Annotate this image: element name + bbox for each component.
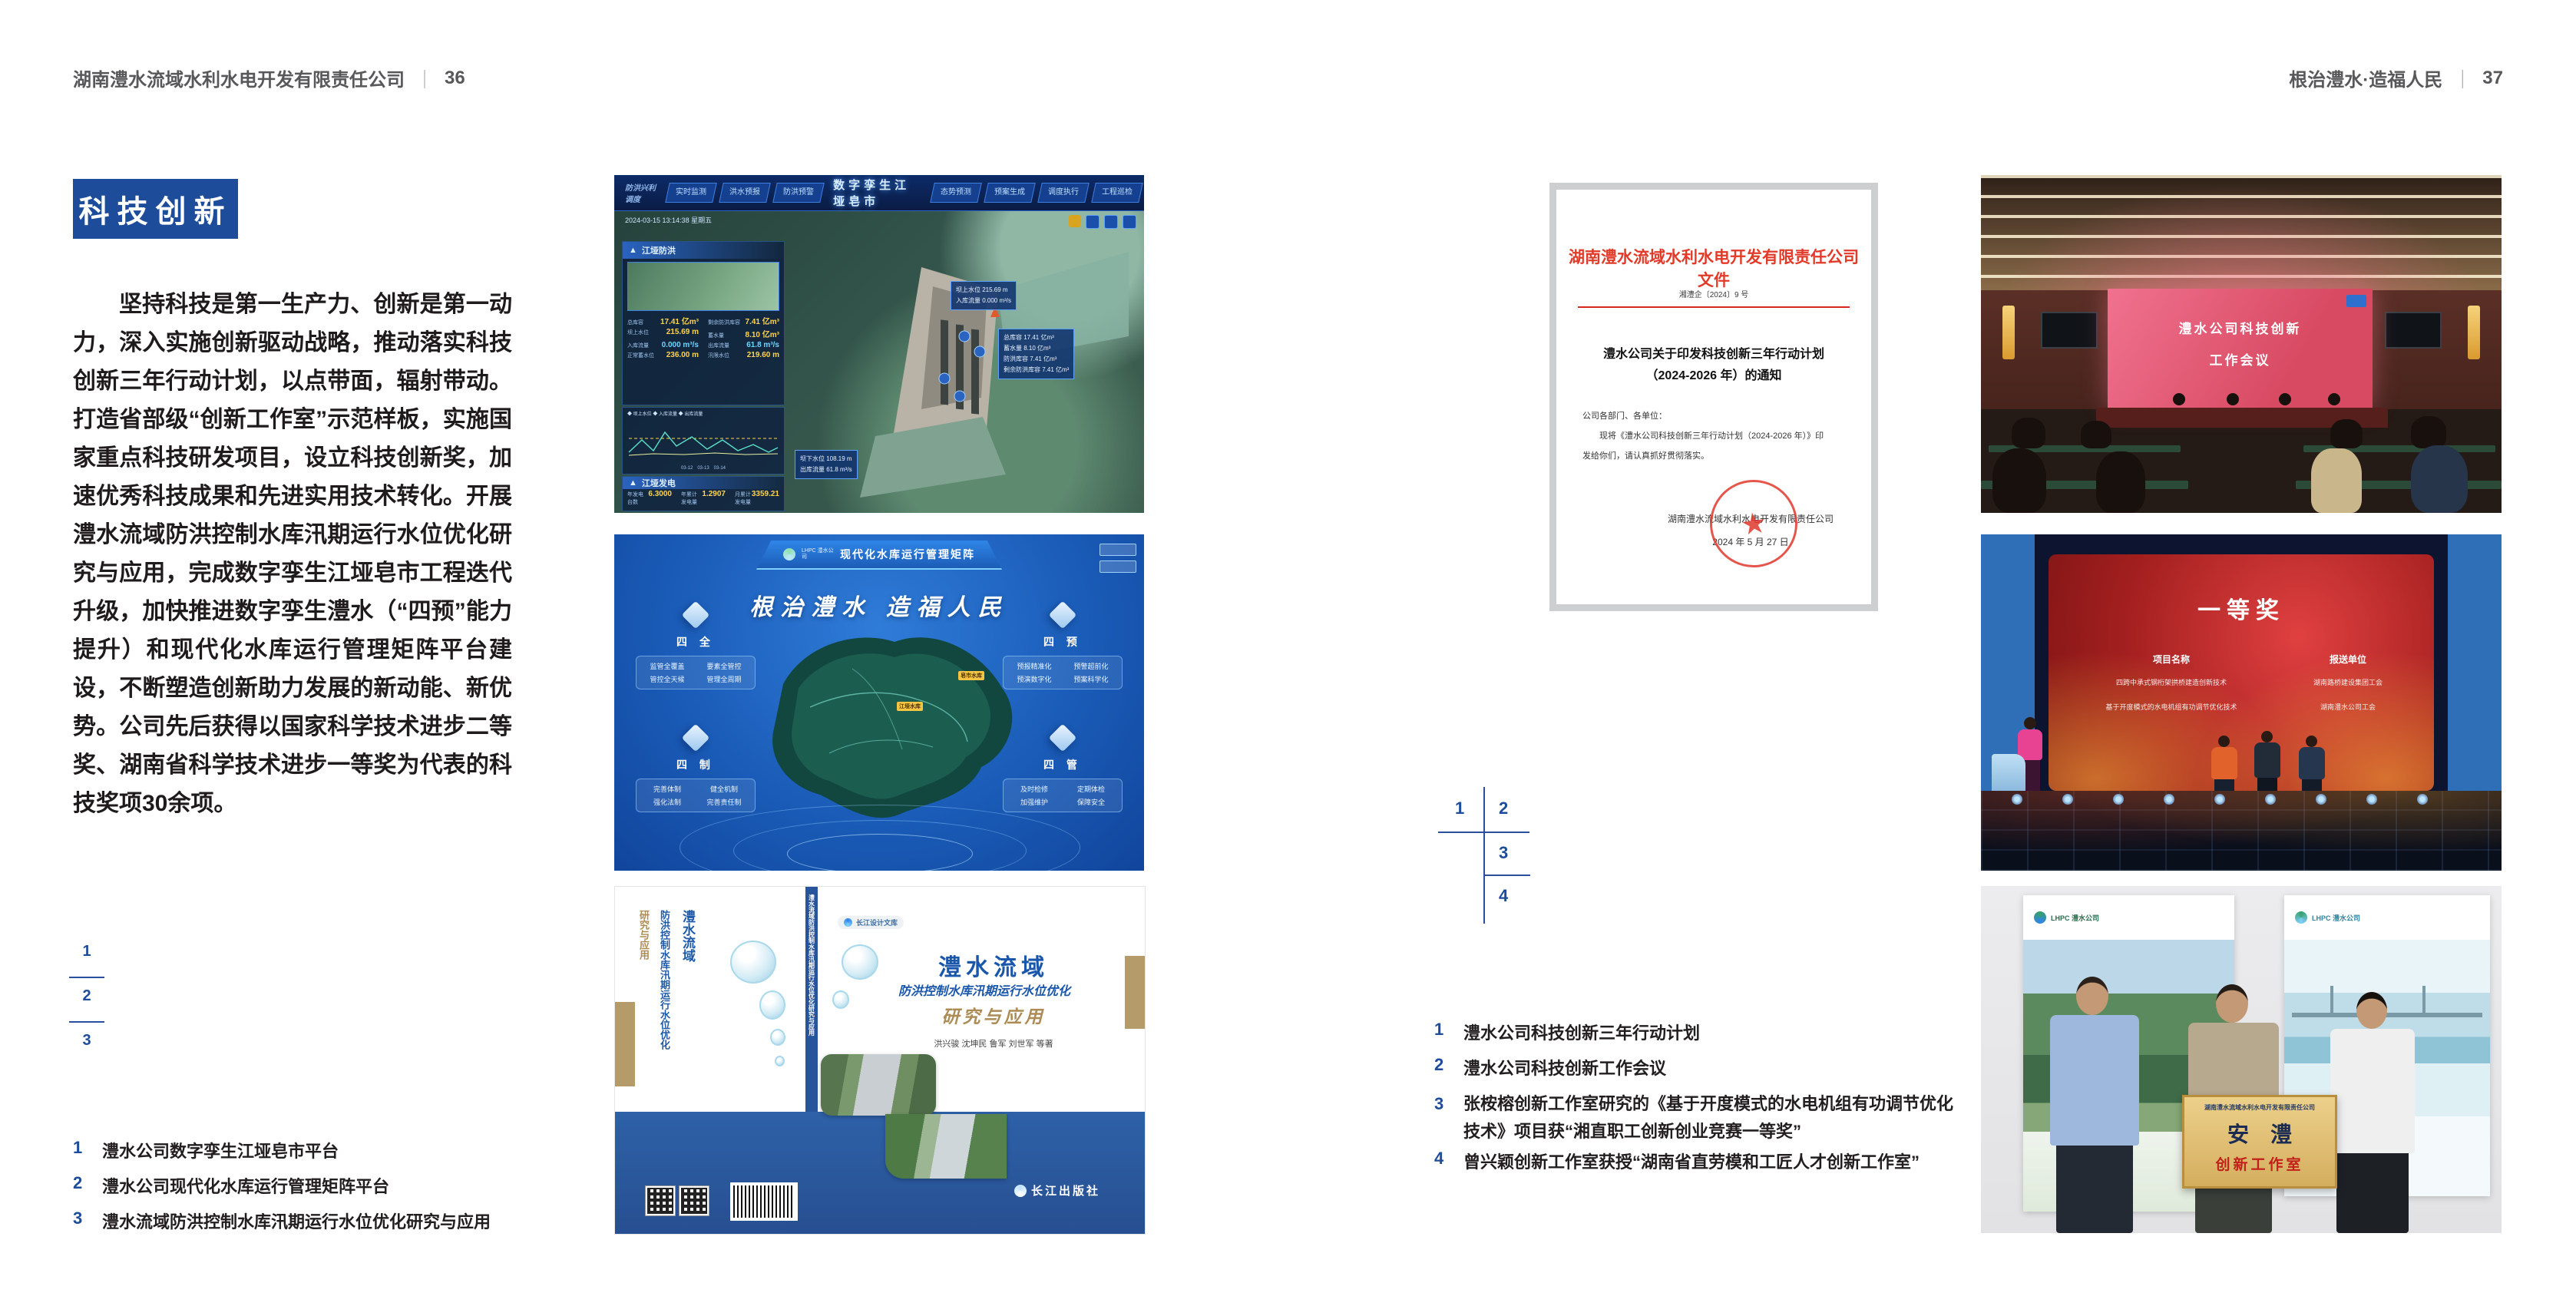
stat-value: 8.10 亿m³ xyxy=(746,328,779,339)
matrix-button xyxy=(1100,544,1136,556)
audience-silhouette xyxy=(2411,416,2446,448)
stat: 汛限水位219.60 m xyxy=(703,350,784,360)
matrix-title: 现代化水库运行管理矩阵 xyxy=(840,547,975,562)
stat: 年累计发电量1.2907 xyxy=(676,489,730,507)
publisher-logo: 长江出版社 xyxy=(1014,1182,1100,1199)
back-title-1: 澧水流域 xyxy=(678,910,697,1102)
book-authors: 洪兴骏 沈坤民 鲁军 刘世军 等著 xyxy=(845,1037,1142,1050)
book-bottom-band xyxy=(615,1112,1145,1234)
screen-line-2: 工作会议 xyxy=(2108,349,2373,369)
audience-silhouette xyxy=(2081,421,2111,448)
unit-item: 湖南澧水公司工会 xyxy=(2279,702,2417,712)
caption-text: 张桉榕创新工作室研究的《基于开度模式的水电机组有功调节优化技术》项目获“湘直职工… xyxy=(1463,1090,1955,1146)
back-cover-title: 澧水流域 防洪控制水库汛期运行水位优化 研究与应用 xyxy=(637,910,697,1102)
stat-value: 1.2907 xyxy=(702,490,726,498)
tab-situation-forecast: 态势预测 xyxy=(930,183,982,203)
changjiang-press-logo-icon xyxy=(1014,1185,1027,1197)
left-header-title: 湖南澧水流域水利水电开发有限责任公司 xyxy=(73,64,405,91)
document-title-line1: 澧水公司关于印发科技创新三年行动计划 xyxy=(1556,343,1871,362)
front-title-accent: 研究与应用 xyxy=(845,1002,1142,1028)
back-title-2: 防洪控制水库汛期运行水位优化 xyxy=(657,910,672,1102)
stage-light xyxy=(2012,794,2022,805)
dashboard-timestamp: 2024-03-15 13:14:38 星期五 xyxy=(625,215,712,225)
right-header-title: 根治澧水·造福人民 xyxy=(2289,64,2442,91)
chart-legend: ◆ 坝上水位 ◆ 入库流量 ◆ 出库流量 xyxy=(623,408,784,417)
user-icon xyxy=(1069,215,1081,227)
stage-lights-row xyxy=(1981,791,2502,805)
poster-header: LHPC 澧水公司 xyxy=(2023,895,2234,940)
right-page-number: 37 xyxy=(2482,68,2503,89)
figure-meeting-photo: 澧水公司科技创新 工作会议 xyxy=(1981,175,2502,513)
panelist-silhouette xyxy=(2279,393,2291,405)
unit-item: 湖南路桥建设集团工会 xyxy=(2279,677,2417,687)
front-title-sub: 防洪控制水库汛期运行水位优化 xyxy=(824,980,1145,999)
group-item: 完善责任制 xyxy=(696,797,752,807)
left-page-header: 湖南澧水流域水利水电开发有限责任公司 ｜ 36 xyxy=(73,64,465,91)
section-title: 科技创新 xyxy=(73,179,238,239)
stage-light xyxy=(2214,794,2225,805)
person-torso xyxy=(2330,1029,2415,1153)
tooltip-upstream: 坝上水位 215.69 m 入库流量 0.000 m³/s xyxy=(951,281,1017,310)
stage-light xyxy=(2366,794,2377,805)
caption-number: 2 xyxy=(73,1173,90,1193)
document-body-line2: 发给你们，请认真抓好贯彻落实。 xyxy=(1582,449,1836,461)
stat: 坝上水位215.69 m xyxy=(623,327,703,340)
left-caption-2: 2 澧水公司现代化水库运行管理矩阵平台 xyxy=(73,1173,534,1198)
workshop-plaque: 湖南澧水流域水利水电开发有限责任公司 安 澧 创新工作室 xyxy=(2182,1095,2337,1189)
group-item: 强化法制 xyxy=(640,797,695,807)
figure-index-1: 1 xyxy=(69,943,104,960)
award-title: 一等奖 xyxy=(2049,591,2434,625)
matrix-button xyxy=(1100,560,1136,573)
stat-value: 61.8 m³/s xyxy=(746,341,779,349)
audience-silhouette xyxy=(1992,448,2046,513)
figure-index-3: 3 xyxy=(69,1032,104,1050)
badge-text: 长江设计文库 xyxy=(856,918,898,927)
meeting-wall-left xyxy=(1981,290,2108,409)
panel-icon: ▲ xyxy=(629,246,637,255)
header-divider: ｜ xyxy=(2453,64,2472,91)
person-head xyxy=(2076,977,2108,1015)
wall-lamp xyxy=(2468,306,2480,359)
chart-x-labels: 03-12 03-13 03-14 xyxy=(623,464,784,471)
bridge-pylon xyxy=(2422,986,2426,1017)
cross-horizontal-line xyxy=(1484,875,1530,876)
stage-light xyxy=(2417,794,2428,805)
stat-label: 年累计发电量 xyxy=(681,491,702,506)
wall-tv xyxy=(2385,312,2442,349)
caption-text: 澧水公司科技创新三年行动计划 xyxy=(1463,1020,1700,1044)
person-torso xyxy=(2050,1015,2139,1146)
figure-index-divider xyxy=(69,977,104,978)
stage-light xyxy=(2265,794,2276,805)
audience-silhouette xyxy=(2096,451,2145,513)
caption-number: 3 xyxy=(1434,1090,1451,1118)
group-name: 四 制 xyxy=(636,757,756,772)
audience-silhouette xyxy=(2012,418,2045,448)
tooltip-line: 剩余防洪库容 7.41 亿m³ xyxy=(1004,365,1069,375)
official-seal: ★ xyxy=(1705,474,1804,574)
stat-value: 7.41 亿m³ xyxy=(746,315,779,326)
figure-index-divider xyxy=(69,1021,104,1023)
person-head xyxy=(2306,736,2317,747)
panelist-silhouette xyxy=(2227,393,2239,405)
group-item: 及时检修 xyxy=(1007,784,1062,794)
watershed-map xyxy=(737,615,1029,822)
dam-photo-small xyxy=(821,1054,936,1116)
panel-jiangya-power: ▲江垭发电 年发电台数6.3000 年累计发电量1.2907 月累计发电量335… xyxy=(622,476,785,511)
group-panel: 监管全覆盖 要素全管控 管控全天候 管理全周期 xyxy=(636,656,756,689)
dam-thumbnail xyxy=(627,262,779,311)
stat: 入库流量0.000 m³/s xyxy=(623,340,703,350)
back-tan-block xyxy=(615,1002,635,1086)
caption-number: 1 xyxy=(1434,1020,1451,1040)
stat: 总库容17.41 亿m³ xyxy=(623,314,703,327)
maintenance-icon xyxy=(1049,724,1077,752)
dashboard-title: 数字孪生江垭皂市 xyxy=(833,177,921,209)
document-salutation: 公司各部门、各单位： xyxy=(1582,409,1667,422)
caption-number: 2 xyxy=(1434,1055,1451,1075)
figure-book-cover: 澧水流域防洪控制水库汛期运行水位优化研究与应用 澧水流域 防洪控制水库汛期运行水… xyxy=(614,886,1146,1235)
chart-plot xyxy=(623,417,784,460)
tooltip-downstream: 坝下水位 108.19 m 出库流量 61.8 m³/s xyxy=(795,450,858,479)
plaque-subtitle: 创新工作室 xyxy=(2184,1153,2335,1174)
caption-number: 1 xyxy=(73,1138,90,1158)
group-name: 四 预 xyxy=(1003,634,1123,650)
project-item: 基于开度模式的水电机组有功调节优化技术 xyxy=(2072,702,2271,712)
stat-label: 坝上水位 xyxy=(627,329,649,336)
screen-line-1: 澧水公司科技创新 xyxy=(2108,318,2373,337)
right-caption-2: 2 澧水公司科技创新工作会议 xyxy=(1434,1055,1956,1080)
dashboard-corner-label: 防洪兴利调度 xyxy=(625,181,658,204)
group-item: 加强维护 xyxy=(1007,797,1062,807)
audience-silhouette xyxy=(2411,445,2468,513)
stat-value: 219.60 m xyxy=(747,351,779,359)
stage-floor xyxy=(1981,791,2502,871)
column-header-project: 项目名称 xyxy=(2102,653,2240,666)
stat-label: 出库流量 xyxy=(708,342,729,349)
stat-value: 215.69 m xyxy=(666,328,699,336)
person-torso xyxy=(2299,747,2325,779)
caption-text: 曾兴颖创新工作室获授“湖南省直劳模和工匠人才创新工作室” xyxy=(1463,1149,1920,1173)
stat-label: 正常蓄水位 xyxy=(627,352,654,359)
group-panel: 完善体制 健全机制 强化法制 完善责任制 xyxy=(636,779,756,812)
poster-logo-text: LHPC 澧水公司 xyxy=(2312,913,2360,923)
caption-text: 澧水公司科技创新工作会议 xyxy=(1463,1055,1666,1080)
magazine-spread: { "left_page": { "header_title": "湖南澧水流域… xyxy=(0,0,2576,1306)
tab-plan-generation: 预案生成 xyxy=(984,183,1036,203)
person-torso xyxy=(2018,729,2042,760)
monitor-icon xyxy=(682,601,710,630)
seal-star-icon: ★ xyxy=(1738,504,1769,542)
meeting-screen: 澧水公司科技创新 工作会议 xyxy=(2108,289,2373,408)
caption-number: 4 xyxy=(1434,1149,1451,1169)
front-title-main: 澧水流域 xyxy=(845,948,1142,982)
stat-label: 月累计发电量 xyxy=(735,491,752,506)
document-rule xyxy=(1578,306,1850,308)
panelist-silhouette xyxy=(2173,393,2185,405)
forecast-icon xyxy=(1049,601,1077,630)
lhpc-logo-icon xyxy=(783,548,795,560)
stage-light xyxy=(2316,794,2326,805)
stat: 正常蓄水位236.00 m xyxy=(623,350,703,360)
panel-header: ▲江垭发电 xyxy=(623,477,784,489)
barcode xyxy=(730,1182,798,1221)
figure-official-document: 湖南澧水流域水利水电开发有限责任公司文件 湘澧企〔2024〕9 号 澧水公司关于… xyxy=(1549,183,1878,611)
tab-flood-warning: 防洪预警 xyxy=(772,183,825,203)
caption-number: 3 xyxy=(73,1208,90,1228)
figure-index-3: 3 xyxy=(1499,843,1508,863)
water-level-chart: ◆ 坝上水位 ◆ 入库流量 ◆ 出库流量 03-12 03-13 03-14 xyxy=(622,407,785,474)
document-header: 湖南澧水流域水利水电开发有限责任公司文件 xyxy=(1562,245,1865,291)
group-item: 完善体制 xyxy=(640,784,695,794)
group-item: 预警超前化 xyxy=(1063,661,1119,671)
person-head xyxy=(2261,731,2273,742)
matrix-group-siguan: 四 管 及时检修 定期体检 加强维护 保障安全 xyxy=(1003,728,1123,812)
caption-text: 澧水流域防洪控制水库汛期运行水位优化研究与应用 xyxy=(102,1208,491,1233)
matrix-logo-text: LHPC 澧水公司 xyxy=(802,548,834,560)
matrix-group-siquan: 四 全 监管全覆盖 要素全管控 管控全天候 管理全周期 xyxy=(636,605,756,689)
tab-dispatch-execution: 调度执行 xyxy=(1037,183,1090,203)
group-item: 管控全天候 xyxy=(640,674,695,684)
matrix-group-siyu: 四 预 预报精准化 预警超前化 预演数字化 预案科学化 xyxy=(1003,605,1123,689)
left-caption-1: 1 澧水公司数字孪生江垭皂市平台 xyxy=(73,1138,534,1162)
document-number: 湘澧企〔2024〕9 号 xyxy=(1556,288,1871,299)
stat-label: 入库流量 xyxy=(627,342,649,349)
meeting-wall-right xyxy=(2373,290,2502,409)
stage-light xyxy=(2164,794,2174,805)
figure-index-2: 2 xyxy=(69,987,104,1005)
column-header-unit: 报送单位 xyxy=(2287,653,2409,666)
person-torso xyxy=(2254,742,2280,778)
person-legs xyxy=(2336,1153,2409,1233)
publisher-badge: 长江设计文库 xyxy=(838,916,904,929)
project-item: 四跨中承式钢桁架拱桥建造创新技术 xyxy=(2072,677,2271,687)
group-item: 监管全覆盖 xyxy=(640,661,695,671)
cross-vertical-line xyxy=(1483,787,1485,924)
group-item: 预报精准化 xyxy=(1007,661,1062,671)
document-page: 湖南澧水流域水利水电开发有限责任公司文件 湘澧企〔2024〕9 号 澧水公司关于… xyxy=(1556,190,1871,604)
group-item: 健全机制 xyxy=(696,784,752,794)
plaque-title: 安 澧 xyxy=(2184,1118,2335,1149)
stat-label: 剩余防洪库容 xyxy=(708,319,740,326)
figure-digital-twin-dashboard: 防洪兴利调度 实时监测 洪水预报 防洪预警 数字孪生江垭皂市 态势预测 预案生成… xyxy=(614,175,1144,513)
person-torso xyxy=(2211,747,2237,779)
map-marker-jiangya: 江垭水库 xyxy=(897,702,923,711)
group-panel: 预报精准化 预警超前化 预演数字化 预案科学化 xyxy=(1003,656,1123,689)
group-name: 四 管 xyxy=(1003,757,1123,772)
plaque-header: 湖南澧水流域水利水电开发有限责任公司 xyxy=(2184,1103,2335,1112)
tooltip-line: 防洪库容 7.41 亿m³ xyxy=(1004,354,1069,365)
dashboard-top-bar: 防洪兴利调度 实时监测 洪水预报 防洪预警 数字孪生江垭皂市 态势预测 预案生成… xyxy=(614,175,1144,211)
dam-photo-green xyxy=(885,1114,1007,1179)
panelist-silhouette xyxy=(2328,393,2340,405)
stat: 出库流量61.8 m³/s xyxy=(703,340,784,350)
stat-value: 0.000 m³/s xyxy=(662,341,699,349)
figure-index-4: 4 xyxy=(1499,886,1508,906)
tab-realtime-monitoring: 实时监测 xyxy=(665,183,717,203)
stat-label: 总库容 xyxy=(627,319,643,326)
audience-silhouette xyxy=(2311,448,2362,513)
screen-logo-badge xyxy=(2346,295,2366,307)
tooltip-line: 出库流量 61.8 m³/s xyxy=(800,465,852,475)
right-caption-1: 1 澧水公司科技创新三年行动计划 xyxy=(1434,1020,1956,1044)
document-body-line1: 现将《澧水公司科技创新三年行动计划（2024-2026 年）》印 xyxy=(1599,429,1853,441)
matrix-buttons xyxy=(1100,544,1136,573)
figure-matrix-platform: LHPC 澧水公司 现代化水库运行管理矩阵 根治澧水 造福人民 皂市水库 江垭水… xyxy=(614,534,1144,871)
woman-white-shirt xyxy=(2330,992,2415,1233)
poster-logo-text: LHPC 澧水公司 xyxy=(2051,913,2099,923)
right-caption-4: 4 曾兴颖创新工作室获授“湖南省直劳模和工匠人才创新工作室” xyxy=(1434,1149,1956,1173)
figure-index-2: 2 xyxy=(1499,798,1508,818)
group-item: 定期体检 xyxy=(1063,784,1119,794)
group-panel: 及时检修 定期体检 加强维护 保障安全 xyxy=(1003,779,1123,812)
water-droplet xyxy=(775,1056,785,1066)
ripple-ring xyxy=(787,834,973,871)
audience-silhouette xyxy=(2330,419,2363,448)
matrix-header: LHPC 澧水公司 现代化水库运行管理矩阵 xyxy=(756,541,1002,570)
qr-code xyxy=(646,1186,675,1215)
group-item: 管理全周期 xyxy=(696,674,752,684)
tooltip-line: 入库流量 0.000 m³/s xyxy=(956,296,1011,306)
stat-value: 17.41 亿m³ xyxy=(660,315,699,326)
water-droplet xyxy=(730,941,776,984)
stage-screen: 一等奖 项目名称 四跨中承式钢桁架拱桥建造创新技术 基于开度模式的水电机组有功调… xyxy=(2049,554,2434,791)
tooltip-line: 坝上水位 215.69 m xyxy=(956,285,1011,296)
wall-tv xyxy=(2041,312,2098,349)
group-item: 保障安全 xyxy=(1063,797,1119,807)
right-page-header: 根治澧水·造福人民 ｜ 37 xyxy=(2289,64,2503,91)
qr-code xyxy=(680,1186,709,1215)
meeting-ceiling xyxy=(1981,175,2502,290)
person-head xyxy=(2024,717,2036,729)
publisher-name: 长江出版社 xyxy=(1031,1182,1100,1199)
tab-project-inspection: 工程巡检 xyxy=(1091,183,1143,203)
person-legs xyxy=(2056,1146,2133,1233)
book-spine: 澧水流域防洪控制水库汛期运行水位优化研究与应用 xyxy=(805,887,818,1112)
water-droplet xyxy=(770,1029,785,1046)
lhpc-logo-icon xyxy=(2034,911,2046,924)
tooltip-capacity: 总库容 17.41 亿m³ 蓄水量 8.10 亿m³ 防洪库容 7.41 亿m³… xyxy=(998,329,1074,379)
back-title-3: 研究与应用 xyxy=(637,910,651,1102)
stats-grid: 总库容17.41 亿m³ 剩余防洪库容7.41 亿m³ 坝上水位215.69 m… xyxy=(623,314,784,360)
man-blue-polo xyxy=(2050,977,2139,1233)
stat-value: 236.00 m xyxy=(666,351,699,359)
alert-icon xyxy=(1123,215,1136,229)
locate-icon xyxy=(1104,215,1118,229)
dashboard-icon-cluster xyxy=(1069,215,1136,229)
stage-light xyxy=(2113,794,2124,805)
stat-label: 蓄水量 xyxy=(708,332,724,339)
tooltip-line: 总库容 17.41 亿m³ xyxy=(1004,332,1069,343)
poster-header: LHPC 澧水公司 xyxy=(2284,895,2490,940)
right-caption-3: 3 张桉榕创新工作室研究的《基于开度模式的水电机组有功调节优化技术》项目获“湘直… xyxy=(1434,1090,1956,1146)
body-paragraph: 坚持科技是第一生产力、创新是第一动力，深入实施创新驱动战略，推动落实科技创新三年… xyxy=(73,286,512,823)
person-head xyxy=(2216,984,2248,1023)
tooltip-line: 蓄水量 8.10 亿m³ xyxy=(1004,343,1069,354)
panel-header: ▲江垭防洪 xyxy=(623,242,784,259)
wall-lamp xyxy=(2002,306,2015,359)
map-marker-zaoshi: 皂市水库 xyxy=(958,671,984,680)
panel-jiangya-flood: ▲江垭防洪 总库容17.41 亿m³ 剩余防洪库容7.41 亿m³ 坝上水位21… xyxy=(622,241,785,405)
caption-text: 澧水公司现代化水库运行管理矩阵平台 xyxy=(102,1173,389,1198)
lhpc-logo-icon xyxy=(2295,911,2307,924)
stat: 年发电台数6.3000 xyxy=(623,489,676,507)
matrix-group-sizhi: 四 制 完善体制 健全机制 强化法制 完善责任制 xyxy=(636,728,756,812)
document-title-line2: （2024-2026 年）的通知 xyxy=(1556,365,1871,383)
left-caption-3: 3 澧水流域防洪控制水库汛期运行水位优化研究与应用 xyxy=(73,1208,549,1233)
stat-value: 3359.21 xyxy=(752,490,779,498)
group-item: 预案科学化 xyxy=(1063,674,1119,684)
figure-award-stage-photo: 一等奖 项目名称 四跨中承式钢桁架拱桥建造创新技术 基于开度模式的水电机组有功调… xyxy=(1981,534,2502,871)
tooltip-line: 坝下水位 108.19 m xyxy=(800,454,852,465)
group-item: 预演数字化 xyxy=(1007,674,1062,684)
changjiang-design-logo-icon xyxy=(844,918,852,927)
stats-grid: 年发电台数6.3000 年累计发电量1.2907 月累计发电量3359.21 xyxy=(623,489,784,507)
group-name: 四 全 xyxy=(636,634,756,650)
caption-text: 澧水公司数字孪生江垭皂市平台 xyxy=(102,1138,339,1162)
stat-label: 年发电台数 xyxy=(627,491,648,506)
stage-light xyxy=(2062,794,2073,805)
group-item: 要素全管控 xyxy=(696,661,752,671)
header-divider: ｜ xyxy=(415,64,434,91)
person-head xyxy=(2356,992,2387,1029)
layers-icon xyxy=(1086,215,1100,229)
person-head xyxy=(2218,736,2230,747)
institution-icon xyxy=(682,724,710,752)
water-droplet xyxy=(759,990,785,1020)
panel-icon: ▲ xyxy=(629,478,637,488)
left-page-number: 36 xyxy=(445,68,465,89)
figure-index-1: 1 xyxy=(1455,798,1464,818)
cross-horizontal-line xyxy=(1438,832,1529,833)
stat: 蓄水量8.10 亿m³ xyxy=(703,327,784,340)
stat-value: 6.3000 xyxy=(648,490,672,498)
tab-flood-forecast: 洪水预报 xyxy=(719,183,771,203)
stat: 月累计发电量3359.21 xyxy=(730,489,784,507)
figure-workshop-photo: LHPC 澧水公司 LHPC 澧水公司 湖南澧水流域水利水电开发有限责任公司 xyxy=(1981,886,2502,1233)
spine-title: 澧水流域防洪控制水库汛期运行水位优化研究与应用 xyxy=(808,894,816,1102)
stat-label: 汛限水位 xyxy=(708,352,729,359)
stat: 剩余防洪库容7.41 亿m³ xyxy=(703,314,784,327)
